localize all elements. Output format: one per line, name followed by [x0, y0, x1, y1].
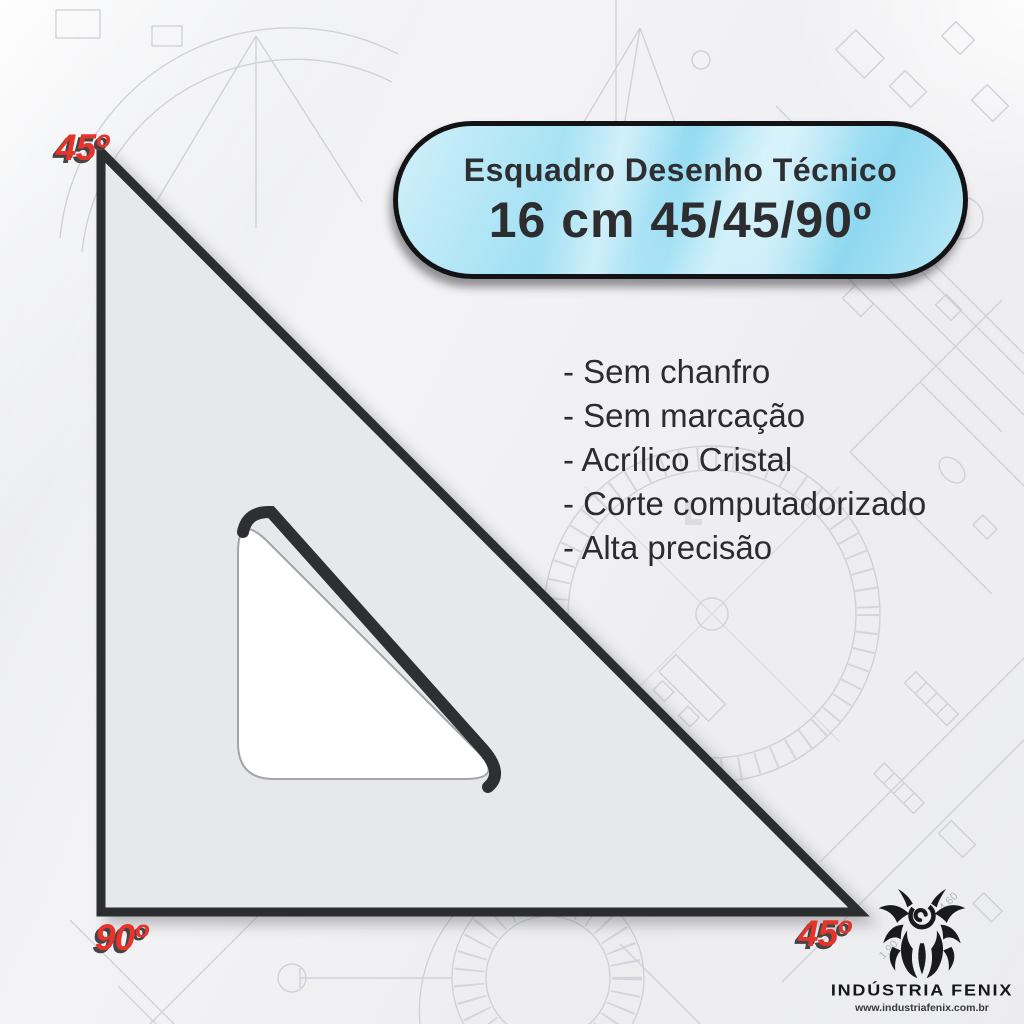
feature-item: - Acrílico Cristal — [563, 438, 926, 482]
angle-label-top: 45º — [56, 129, 108, 166]
brand-logo: INDÚSTRIA FENIX www.industriafenix.com.b… — [822, 888, 1022, 1014]
feature-item: - Corte computadorizado — [563, 482, 926, 526]
product-banner: 4.60 1.90 45º 90º 45º Esquadro Desenho T… — [0, 0, 1024, 1024]
feature-list: - Sem chanfro - Sem marcação - Acrílico … — [563, 350, 926, 570]
angle-label-bottom-left: 90º — [95, 919, 147, 956]
phoenix-icon — [866, 888, 978, 980]
product-title: Esquadro Desenho Técnico — [464, 152, 897, 189]
brand-name: INDÚSTRIA FENIX — [822, 981, 1022, 999]
product-title-badge: Esquadro Desenho Técnico 16 cm 45/45/90º — [393, 121, 968, 279]
brand-website: www.industriafenix.com.br — [822, 1002, 1022, 1014]
feature-item: - Sem chanfro — [563, 350, 926, 394]
feature-item: - Sem marcação — [563, 394, 926, 438]
feature-item: - Alta precisão — [563, 526, 926, 570]
product-size-line: 16 cm 45/45/90º — [489, 191, 873, 249]
